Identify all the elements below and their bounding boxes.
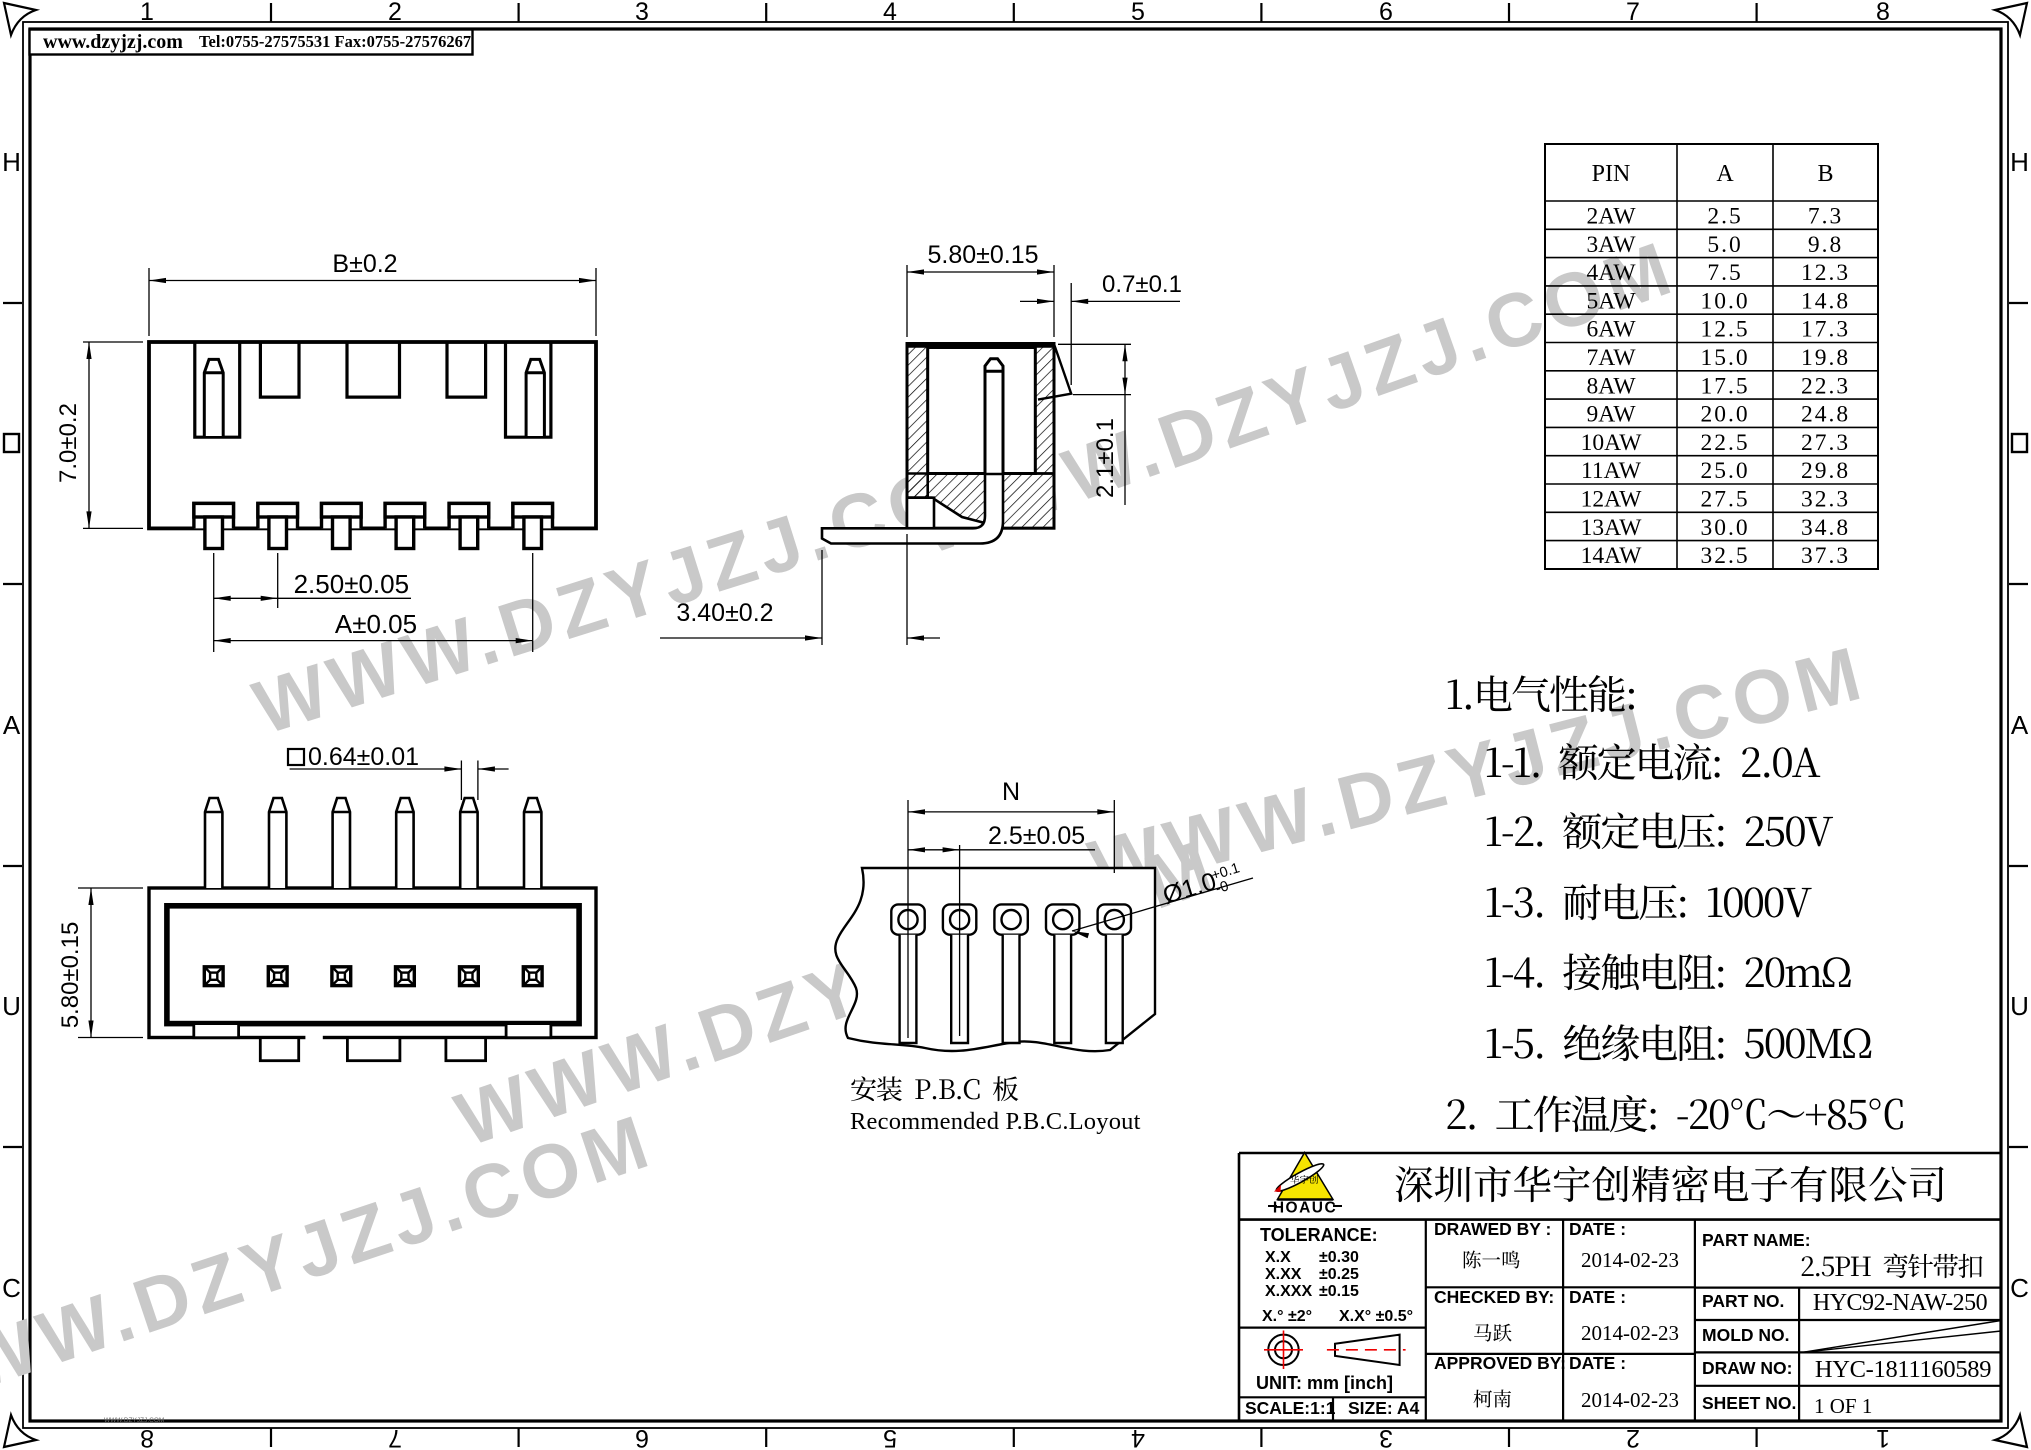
svg-text:11AW: 11AW	[1581, 458, 1642, 484]
svg-text:2: 2	[1626, 1424, 1640, 1450]
svg-text:PART NAME:: PART NAME:	[1702, 1230, 1811, 1250]
svg-text:C: C	[2010, 1273, 2029, 1303]
svg-text:2: 2	[388, 0, 402, 26]
svg-text:H: H	[2010, 147, 2029, 177]
svg-text:27.5: 27.5	[1700, 487, 1749, 513]
svg-text:6: 6	[635, 1424, 649, 1450]
svg-text:17.3: 17.3	[1801, 317, 1850, 343]
svg-text:HYC92-NAW-250: HYC92-NAW-250	[1813, 1290, 1988, 1316]
svg-text:3.40±0.2: 3.40±0.2	[676, 599, 773, 627]
svg-text:2.50±0.05: 2.50±0.05	[294, 569, 409, 599]
svg-text:Recommended P.B.C.Loyout: Recommended P.B.C.Loyout	[850, 1108, 1141, 1135]
svg-text:DATE :: DATE :	[1569, 1219, 1626, 1239]
svg-text:32.5: 32.5	[1700, 543, 1749, 569]
svg-text:SIZE: A4: SIZE: A4	[1348, 1398, 1420, 1418]
svg-text:PIN: PIN	[1592, 161, 1631, 187]
svg-text:17.5: 17.5	[1700, 373, 1749, 399]
svg-text:UNIT: mm [inch]: UNIT: mm [inch]	[1256, 1373, 1393, 1393]
svg-text:29.8: 29.8	[1801, 458, 1850, 484]
svg-text:12AW: 12AW	[1581, 487, 1643, 513]
svg-text:B±0.2: B±0.2	[332, 250, 397, 278]
svg-text:4: 4	[1131, 1424, 1145, 1450]
svg-text:2.1±0.1: 2.1±0.1	[1092, 418, 1119, 498]
svg-text:32.3: 32.3	[1801, 487, 1850, 513]
svg-text:8AW: 8AW	[1586, 373, 1636, 399]
svg-text:15.0: 15.0	[1700, 345, 1749, 371]
svg-text:13AW: 13AW	[1581, 515, 1643, 541]
svg-text:DATE :: DATE :	[1569, 1353, 1626, 1373]
svg-text:14.8: 14.8	[1801, 288, 1850, 314]
svg-text:20.0: 20.0	[1700, 402, 1749, 428]
svg-text:24.8: 24.8	[1801, 402, 1850, 428]
svg-text:Tel:0755-27575531 Fax:0755-27: Tel:0755-27575531 Fax:0755-27576267	[199, 32, 471, 51]
svg-text:5.80±0.15: 5.80±0.15	[927, 241, 1038, 269]
svg-text:10AW: 10AW	[1581, 430, 1643, 456]
svg-text:X.XXX: X.XXX	[1265, 1283, 1312, 1300]
svg-text:2.5: 2.5	[1707, 204, 1742, 230]
svg-text:7: 7	[1626, 0, 1640, 26]
svg-text:A±0.05: A±0.05	[335, 609, 417, 639]
svg-text:3: 3	[1379, 1424, 1393, 1450]
svg-text:2014-02-23: 2014-02-23	[1581, 1388, 1679, 1412]
svg-text:10.0: 10.0	[1700, 288, 1749, 314]
svg-text:DRAW NO:: DRAW NO:	[1702, 1358, 1792, 1378]
svg-text:±0.25: ±0.25	[1319, 1266, 1359, 1283]
svg-text:9.8: 9.8	[1808, 232, 1843, 258]
svg-text:A: A	[1716, 161, 1734, 187]
svg-text:1 OF 1: 1 OF 1	[1814, 1394, 1872, 1418]
svg-text:A: A	[3, 710, 21, 740]
svg-text:3: 3	[635, 0, 649, 26]
svg-text:DRAWED BY :: DRAWED BY :	[1434, 1219, 1551, 1239]
svg-text:0.7±0.1: 0.7±0.1	[1102, 271, 1182, 298]
svg-text:3AW: 3AW	[1586, 232, 1636, 258]
svg-text:www.dzyjzj.com: www.dzyjzj.com	[43, 31, 183, 53]
svg-text:9AW: 9AW	[1586, 402, 1636, 428]
svg-text:TOLERANCE:: TOLERANCE:	[1260, 1225, 1378, 1245]
svg-text:H: H	[2, 147, 21, 177]
svg-text:5.80±0.15: 5.80±0.15	[57, 922, 84, 1029]
svg-text:37.3: 37.3	[1801, 543, 1850, 569]
svg-text:34.8: 34.8	[1801, 515, 1850, 541]
svg-text:7.5: 7.5	[1707, 260, 1742, 286]
svg-text:2AW: 2AW	[1586, 204, 1636, 230]
svg-text:5: 5	[883, 1424, 897, 1450]
svg-text:25.0: 25.0	[1700, 458, 1749, 484]
svg-text:8: 8	[1876, 0, 1890, 26]
svg-text:7: 7	[388, 1424, 402, 1450]
svg-text:5: 5	[1131, 0, 1145, 26]
svg-text:8: 8	[140, 1424, 154, 1450]
svg-text:±0.30: ±0.30	[1319, 1249, 1359, 1266]
svg-text:2014-02-23: 2014-02-23	[1581, 1321, 1679, 1345]
svg-text:4: 4	[883, 0, 897, 26]
svg-text:7AW: 7AW	[1586, 345, 1636, 371]
svg-text:B: B	[1817, 161, 1833, 187]
svg-text:PART NO.: PART NO.	[1702, 1291, 1784, 1311]
svg-text:4AW: 4AW	[1586, 260, 1636, 286]
svg-text:22.3: 22.3	[1801, 373, 1850, 399]
svg-text:2014-02-23: 2014-02-23	[1581, 1248, 1679, 1272]
svg-text:X.° ±2°: X.° ±2°	[1262, 1308, 1312, 1325]
svg-text:X.XX: X.XX	[1265, 1266, 1302, 1283]
svg-text:7.3: 7.3	[1808, 204, 1843, 230]
svg-text:X.X: X.X	[1265, 1249, 1291, 1266]
svg-text:CHECKED BY:: CHECKED BY:	[1434, 1287, 1554, 1307]
svg-text:C: C	[2, 1273, 21, 1303]
svg-text:6AW: 6AW	[1586, 317, 1636, 343]
svg-text:5.0: 5.0	[1707, 232, 1742, 258]
svg-text:APPROVED BY:: APPROVED BY:	[1434, 1353, 1566, 1373]
svg-text:U: U	[2010, 991, 2029, 1021]
svg-text:14AW: 14AW	[1581, 543, 1643, 569]
svg-text:0.64±0.01: 0.64±0.01	[308, 743, 419, 771]
svg-text:12.3: 12.3	[1801, 260, 1850, 286]
svg-text:12.5: 12.5	[1700, 317, 1749, 343]
svg-text:A: A	[2011, 710, 2029, 740]
svg-text:HYC-1811160589: HYC-1811160589	[1815, 1356, 1991, 1383]
svg-text:22.5: 22.5	[1700, 430, 1749, 456]
svg-text:SHEET NO.: SHEET NO.	[1702, 1393, 1796, 1413]
svg-text:X.X° ±0.5°: X.X° ±0.5°	[1339, 1308, 1413, 1325]
svg-text:N: N	[1002, 778, 1020, 806]
svg-text:27.3: 27.3	[1801, 430, 1850, 456]
svg-text:5AW: 5AW	[1586, 288, 1636, 314]
svg-text:1: 1	[140, 0, 154, 26]
svg-text:MOLD NO.: MOLD NO.	[1702, 1325, 1790, 1345]
svg-text:WWW.DZYJZJ.COM: WWW.DZYJZJ.COM	[104, 1417, 164, 1424]
svg-text:2.5±0.05: 2.5±0.05	[988, 822, 1085, 850]
svg-text:DATE :: DATE :	[1569, 1287, 1626, 1307]
svg-text:1: 1	[1876, 1424, 1890, 1450]
svg-text:30.0: 30.0	[1700, 515, 1749, 541]
svg-text:6: 6	[1379, 0, 1393, 26]
svg-text:HOAUC: HOAUC	[1273, 1200, 1337, 1217]
svg-text:SCALE:1:1: SCALE:1:1	[1245, 1398, 1336, 1418]
svg-text:U: U	[2, 991, 21, 1021]
svg-text:±0.15: ±0.15	[1319, 1283, 1359, 1300]
svg-text:19.8: 19.8	[1801, 345, 1850, 371]
svg-text:7.0±0.2: 7.0±0.2	[55, 403, 82, 483]
